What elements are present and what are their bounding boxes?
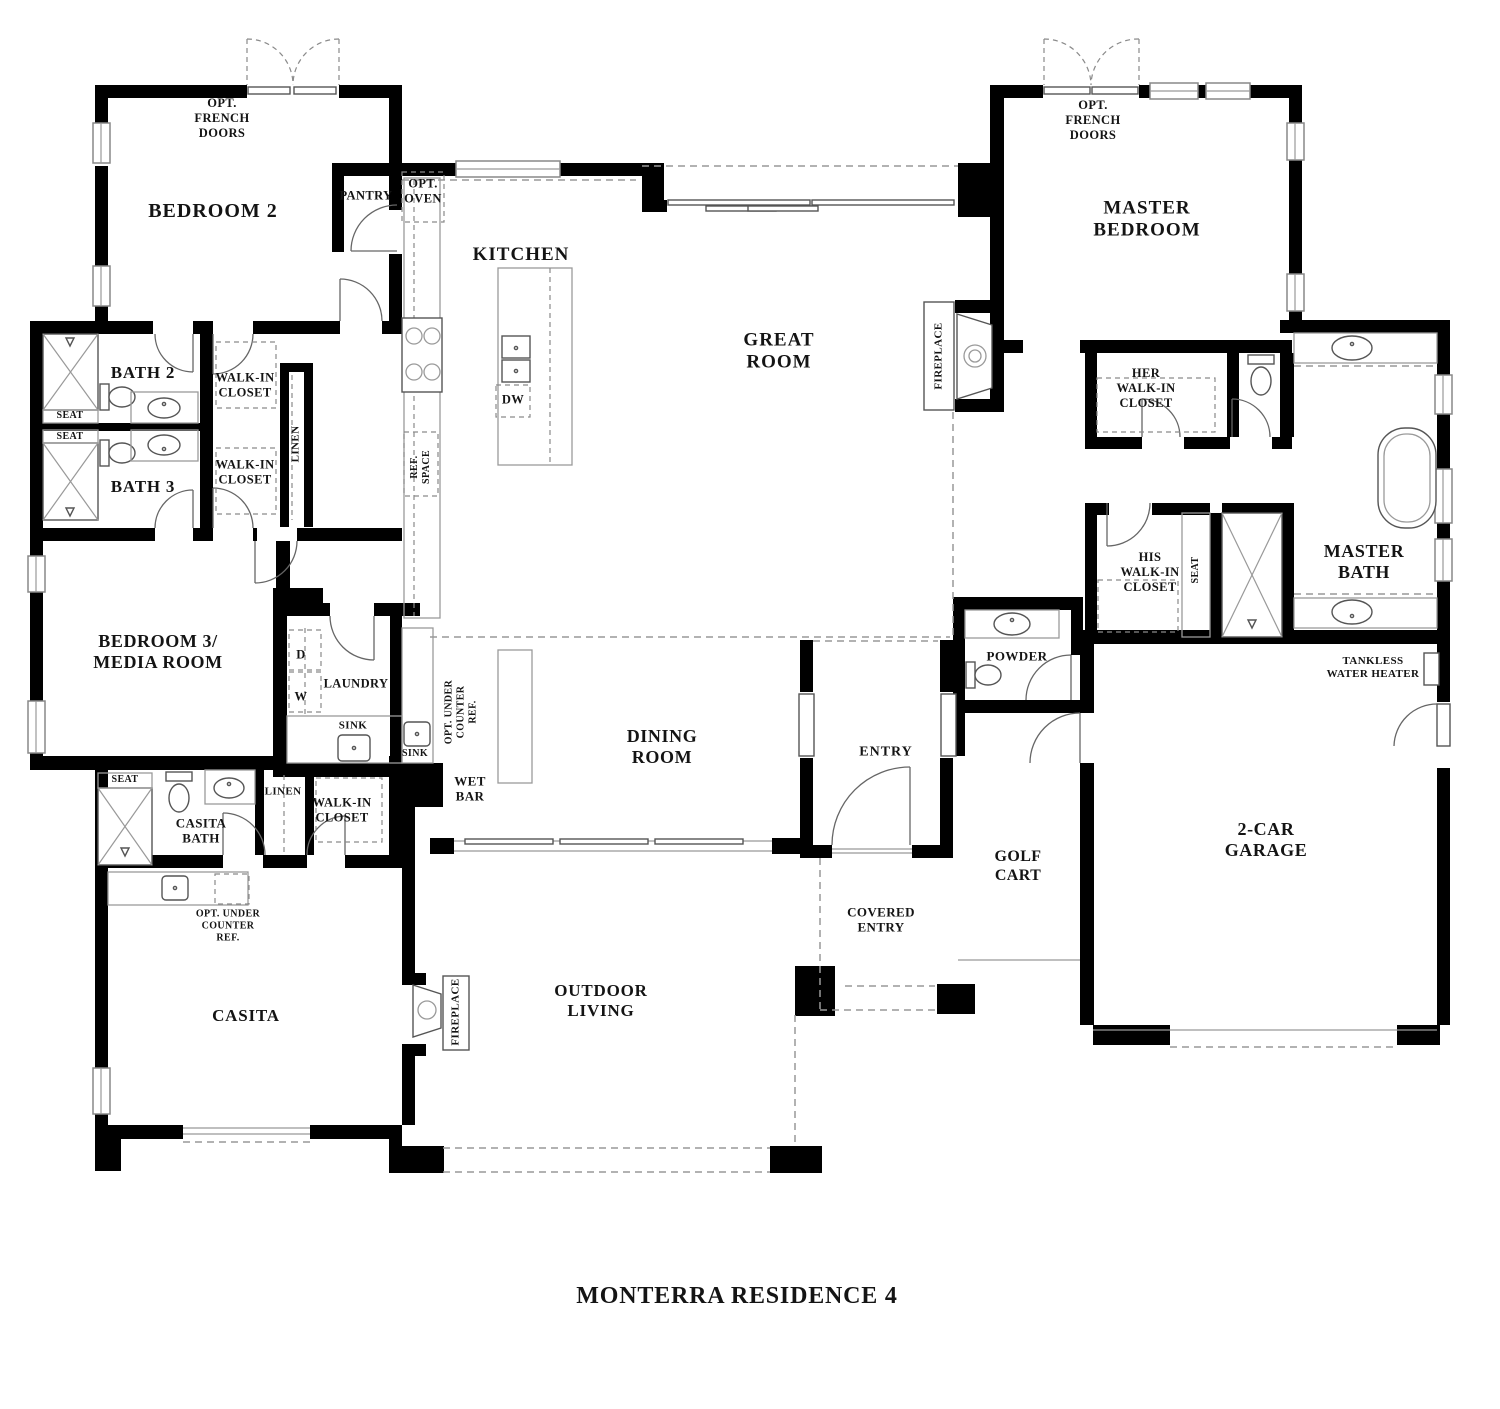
room-label-powder: POWDER bbox=[987, 648, 1048, 663]
shower bbox=[1222, 513, 1282, 637]
sliding-doors bbox=[668, 200, 954, 211]
window bbox=[1435, 469, 1452, 523]
room-label-entry: ENTRY bbox=[859, 745, 913, 762]
toilet bbox=[100, 440, 135, 466]
room-label-bath-2: BATH 2 bbox=[111, 363, 175, 383]
window bbox=[28, 556, 45, 592]
window bbox=[28, 701, 45, 753]
toilet bbox=[966, 662, 1001, 688]
annotation-linen: LINEN bbox=[290, 426, 303, 463]
window bbox=[93, 123, 110, 163]
annotation-opt-under-counter-ref: OPT. UNDER COUNTER REF. bbox=[443, 680, 478, 744]
wet-bar-island bbox=[498, 650, 532, 783]
annotation-sink: SINK bbox=[402, 748, 428, 760]
room-label-casita: CASITA bbox=[212, 1006, 280, 1026]
room-label-covered-entry: COVERED ENTRY bbox=[847, 905, 915, 936]
door-swing bbox=[213, 334, 253, 374]
casita-sink bbox=[162, 876, 188, 900]
window bbox=[1206, 83, 1250, 99]
toilet bbox=[166, 772, 192, 812]
room-label-walk-in-closet: WALK-IN CLOSET bbox=[215, 370, 274, 400]
room-label-outdoor-living: OUTDOOR LIVING bbox=[554, 981, 647, 1021]
window bbox=[93, 266, 110, 306]
door-swing bbox=[1030, 713, 1080, 763]
french-doors bbox=[1044, 39, 1139, 94]
room-label-bedroom-3: BEDROOM 3/ MEDIA ROOM bbox=[93, 631, 223, 673]
door-swing bbox=[330, 616, 374, 660]
room-label-pantry: PANTRY bbox=[339, 189, 392, 204]
shower bbox=[43, 443, 98, 520]
window bbox=[1150, 83, 1198, 99]
bathroom-sink bbox=[131, 430, 198, 461]
annotation-opt-french-doors: OPT. FRENCH DOORS bbox=[1065, 98, 1120, 142]
annotation-seat: SEAT bbox=[57, 410, 84, 422]
shower bbox=[98, 788, 152, 865]
annotation-seat: SEAT bbox=[57, 431, 84, 443]
floor-plan: OPT. FRENCH DOORS BEDROOM 2 PANTRY OPT. … bbox=[0, 0, 1500, 1409]
toilet bbox=[100, 384, 135, 410]
annotation-tankless-water-heater: TANKLESS WATER HEATER bbox=[1327, 655, 1420, 681]
kitchen-sink bbox=[502, 336, 530, 382]
door-swing bbox=[351, 205, 397, 251]
room-label-her-walk-in-closet: HER WALK-IN CLOSET bbox=[1116, 366, 1175, 410]
door-swing bbox=[213, 488, 253, 528]
room-label-walk-in-closet: WALK-IN CLOSET bbox=[215, 457, 274, 487]
bathtub bbox=[1378, 428, 1436, 528]
room-label-casita-bath: CASITA BATH bbox=[176, 816, 227, 847]
window bbox=[1435, 539, 1452, 581]
annotation-seat: SEAT bbox=[1190, 557, 1202, 584]
sliding-doors bbox=[454, 839, 772, 851]
annotation-opt-under-counter-ref: OPT. UNDER COUNTER REF. bbox=[196, 908, 260, 943]
plan-title: MONTERRA RESIDENCE 4 bbox=[576, 1282, 897, 1310]
door-swing bbox=[1107, 503, 1150, 546]
room-label-kitchen: KITCHEN bbox=[473, 244, 570, 266]
kitchen-counter bbox=[404, 178, 440, 618]
casita-under-counter-ref bbox=[215, 874, 249, 904]
room-label-great-room: GREAT ROOM bbox=[743, 330, 814, 375]
bathroom-sink bbox=[131, 392, 198, 423]
annotation-fireplace: FIREPLACE bbox=[450, 978, 463, 1045]
annotation-washer: W bbox=[295, 690, 308, 705]
laundry-sink bbox=[338, 735, 370, 761]
annotation-ref-space: REF. SPACE bbox=[409, 450, 433, 484]
room-label-bedroom-2: BEDROOM 2 bbox=[148, 200, 278, 224]
wet-bar-sink bbox=[404, 722, 430, 746]
annotation-dw: DW bbox=[502, 393, 524, 408]
cased-opening bbox=[941, 694, 956, 756]
window bbox=[1287, 274, 1304, 311]
annotation-fireplace: FIREPLACE bbox=[933, 322, 946, 389]
bathroom-sink bbox=[965, 610, 1059, 638]
tankless-water-heater-unit bbox=[1424, 653, 1439, 685]
bathroom-sink bbox=[1294, 333, 1437, 363]
room-label-garage: 2-CAR GARAGE bbox=[1225, 819, 1308, 861]
room-label-master-bath: MASTER BATH bbox=[1324, 541, 1405, 583]
door-swing bbox=[340, 279, 382, 321]
french-doors bbox=[247, 39, 339, 94]
window bbox=[1287, 123, 1304, 160]
room-label-master-bedroom: MASTER BEDROOM bbox=[1093, 198, 1200, 243]
annotation-opt-oven: OPT. OVEN bbox=[404, 176, 442, 206]
annotation-seat: SEAT bbox=[112, 774, 139, 786]
cooktop bbox=[402, 318, 442, 392]
window bbox=[456, 161, 560, 177]
door-swing bbox=[832, 767, 910, 845]
room-label-walk-in-closet: WALK-IN CLOSET bbox=[312, 795, 371, 825]
shower bbox=[43, 334, 98, 410]
room-label-wet-bar: WET BAR bbox=[454, 774, 486, 805]
room-label-laundry: LAUNDRY bbox=[324, 677, 389, 692]
bathroom-sink bbox=[205, 770, 255, 804]
annotation-opt-french-doors: OPT. FRENCH DOORS bbox=[194, 96, 249, 140]
annotation-dryer: D bbox=[296, 648, 305, 663]
room-label-bath-3: BATH 3 bbox=[111, 477, 175, 497]
window bbox=[1435, 375, 1452, 414]
annotation-linen: LINEN bbox=[265, 786, 302, 799]
room-label-his-walk-in-closet: HIS WALK-IN CLOSET bbox=[1120, 550, 1179, 594]
room-label-dining-room: DINING ROOM bbox=[627, 726, 698, 768]
door-swing bbox=[1394, 704, 1450, 746]
cased-opening bbox=[799, 694, 814, 756]
room-label-golf-cart: GOLF CART bbox=[995, 848, 1042, 886]
toilet bbox=[1248, 355, 1274, 395]
window bbox=[93, 1068, 110, 1114]
annotation-sink: SINK bbox=[339, 720, 368, 733]
bathroom-sink bbox=[1294, 598, 1437, 628]
